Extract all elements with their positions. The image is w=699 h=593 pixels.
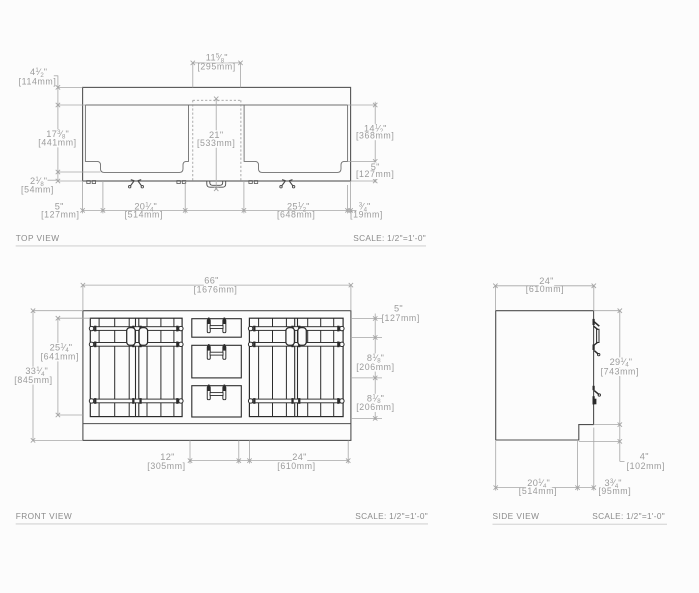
svg-text:[533mm]: [533mm] — [197, 138, 235, 148]
svg-text:[127mm]: [127mm] — [356, 169, 394, 179]
svg-text:[295mm]: [295mm] — [197, 62, 235, 72]
svg-text:FRONT VIEW: FRONT VIEW — [16, 511, 72, 521]
svg-text:[127mm]: [127mm] — [41, 209, 79, 219]
svg-text:[19mm]: [19mm] — [350, 209, 383, 219]
svg-text:[206mm]: [206mm] — [356, 362, 394, 372]
svg-text:[54mm]: [54mm] — [21, 184, 54, 194]
svg-text:[610mm]: [610mm] — [526, 284, 564, 294]
svg-text:[845mm]: [845mm] — [14, 375, 52, 385]
svg-text:SCALE: 1/2"=1'-0": SCALE: 1/2"=1'-0" — [592, 511, 665, 521]
svg-text:4": 4" — [640, 452, 649, 462]
svg-text:SCALE: 1/2"=1'-0": SCALE: 1/2"=1'-0" — [355, 511, 428, 521]
svg-text:TOP VIEW: TOP VIEW — [16, 233, 60, 243]
svg-text:[114mm]: [114mm] — [19, 77, 57, 87]
svg-text:[368mm]: [368mm] — [356, 130, 394, 140]
svg-text:[102mm]: [102mm] — [627, 461, 665, 471]
svg-text:[641mm]: [641mm] — [41, 352, 79, 362]
svg-text:[206mm]: [206mm] — [356, 402, 394, 412]
svg-text:[514mm]: [514mm] — [519, 486, 557, 496]
svg-text:[1676mm]: [1676mm] — [194, 284, 238, 294]
svg-text:SCALE: 1/2"=1'-0": SCALE: 1/2"=1'-0" — [353, 233, 426, 243]
svg-text:[441mm]: [441mm] — [38, 138, 76, 148]
svg-text:[514mm]: [514mm] — [125, 209, 163, 219]
svg-text:[305mm]: [305mm] — [147, 461, 185, 471]
svg-text:[610mm]: [610mm] — [277, 461, 315, 471]
svg-text:[95mm]: [95mm] — [598, 486, 631, 496]
svg-text:SIDE VIEW: SIDE VIEW — [493, 511, 540, 521]
svg-text:[743mm]: [743mm] — [601, 366, 639, 376]
svg-text:[127mm]: [127mm] — [381, 313, 419, 323]
svg-text:[648mm]: [648mm] — [277, 209, 315, 219]
